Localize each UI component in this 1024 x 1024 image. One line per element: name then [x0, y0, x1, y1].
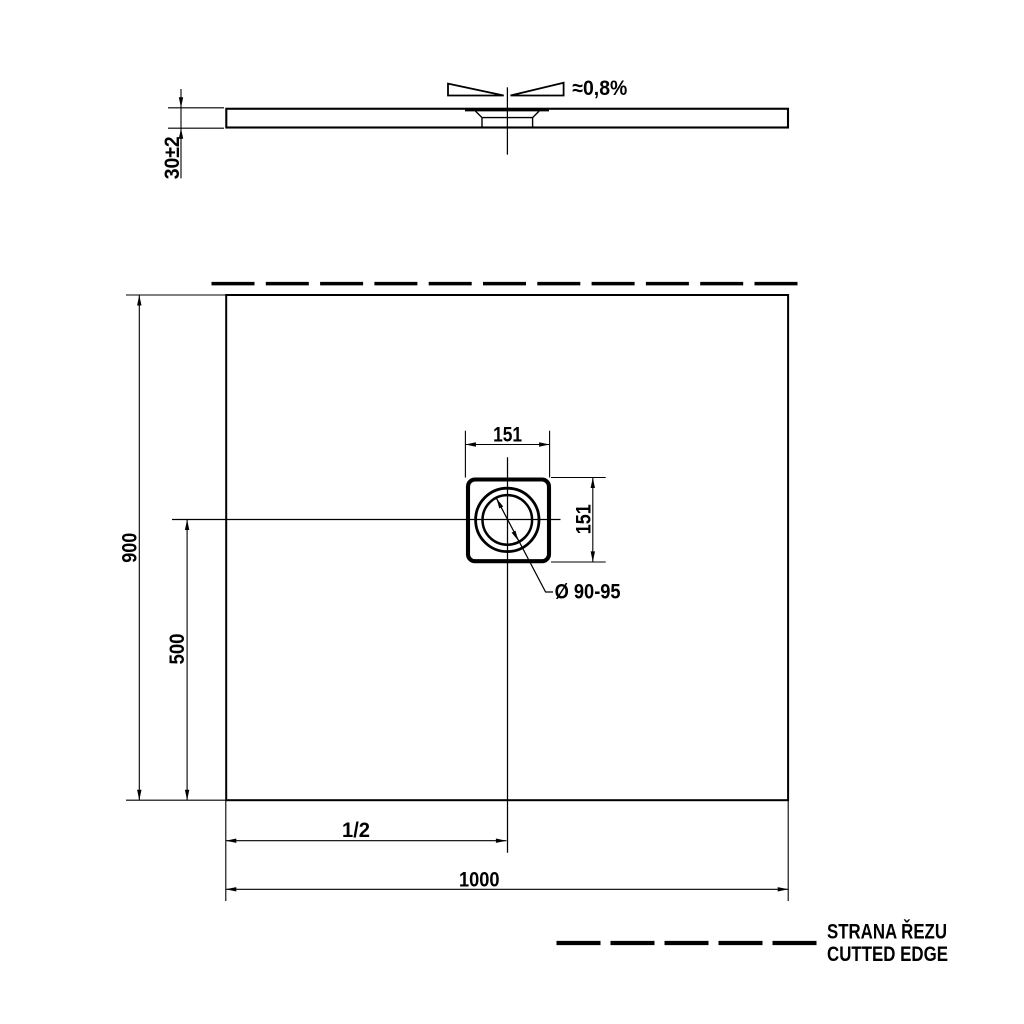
- svg-text:CUTTED EDGE: CUTTED EDGE: [827, 943, 948, 966]
- svg-text:Ø 90-95: Ø 90-95: [555, 581, 621, 604]
- svg-text:1/2: 1/2: [342, 818, 370, 842]
- svg-text:900: 900: [118, 533, 142, 563]
- svg-text:≈0,8%: ≈0,8%: [572, 77, 627, 100]
- svg-text:30±2: 30±2: [160, 136, 184, 179]
- svg-text:500: 500: [165, 633, 189, 664]
- svg-text:151: 151: [493, 422, 522, 446]
- svg-text:STRANA ŘEZU: STRANA ŘEZU: [827, 919, 947, 943]
- svg-text:1000: 1000: [459, 867, 500, 891]
- svg-text:151: 151: [572, 504, 596, 534]
